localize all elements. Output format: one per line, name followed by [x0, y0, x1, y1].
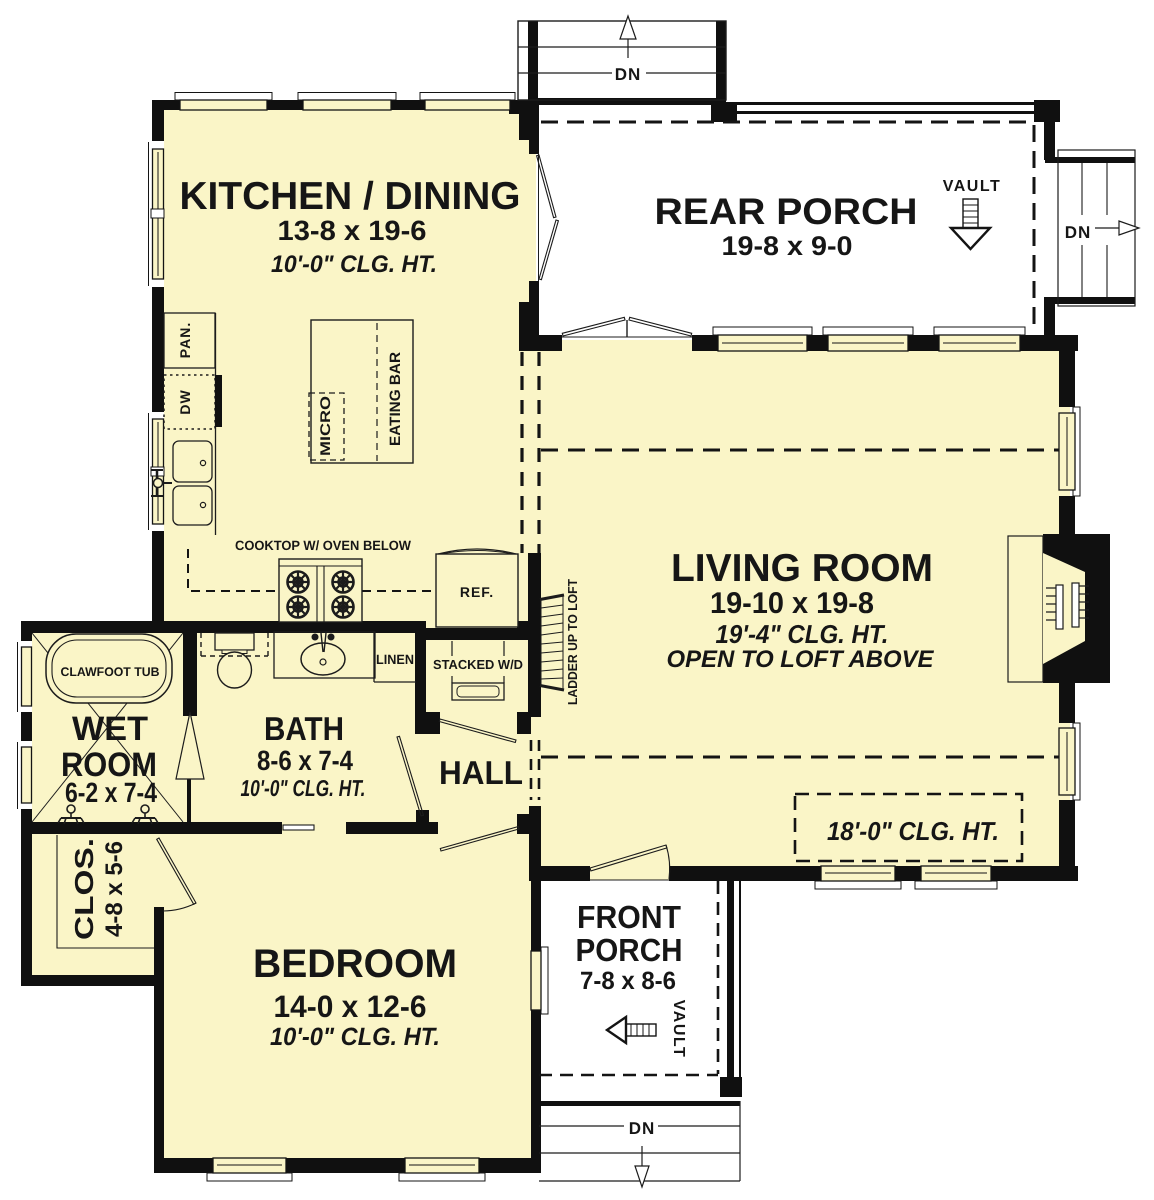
svg-text:18'-0" CLG. HT.: 18'-0" CLG. HT. [827, 816, 999, 846]
svg-text:OPEN TO LOFT ABOVE: OPEN TO LOFT ABOVE [667, 646, 935, 673]
svg-text:VAULT: VAULT [670, 1000, 687, 1058]
svg-text:19-10 x 19-8: 19-10 x 19-8 [710, 587, 874, 620]
svg-text:6-2 x 7-4: 6-2 x 7-4 [65, 777, 157, 808]
svg-text:BEDROOM: BEDROOM [253, 942, 457, 986]
svg-text:LIVING ROOM: LIVING ROOM [671, 547, 933, 590]
svg-text:13-8 x 19-6: 13-8 x 19-6 [278, 215, 427, 246]
svg-text:MICRO: MICRO [317, 396, 333, 456]
svg-text:14-0 x 12-6: 14-0 x 12-6 [274, 989, 427, 1024]
svg-text:HALL: HALL [439, 754, 523, 791]
svg-text:CLOS.: CLOS. [69, 838, 99, 940]
svg-text:BATH: BATH [264, 710, 344, 747]
svg-text:LINEN: LINEN [376, 652, 414, 667]
svg-text:10'-0" CLG. HT.: 10'-0" CLG. HT. [270, 1023, 440, 1051]
svg-text:REAR PORCH: REAR PORCH [655, 191, 918, 232]
svg-text:STACKED W/D: STACKED W/D [433, 657, 523, 672]
svg-text:10'-0" CLG. HT.: 10'-0" CLG. HT. [241, 775, 366, 801]
svg-text:LADDER UP TO LOFT: LADDER UP TO LOFT [565, 579, 580, 705]
svg-text:DN: DN [629, 1119, 656, 1138]
svg-text:CLAWFOOT TUB: CLAWFOOT TUB [61, 665, 160, 679]
svg-text:19-8 x 9-0: 19-8 x 9-0 [722, 231, 853, 261]
svg-text:DN: DN [615, 65, 642, 84]
svg-text:KITCHEN / DINING: KITCHEN / DINING [180, 175, 521, 218]
svg-text:PORCH: PORCH [576, 932, 683, 968]
svg-text:10'-0" CLG. HT.: 10'-0" CLG. HT. [271, 251, 437, 278]
svg-text:VAULT: VAULT [943, 178, 1001, 195]
svg-text:DW: DW [177, 389, 193, 414]
svg-text:FRONT: FRONT [577, 899, 681, 935]
svg-text:WET: WET [72, 710, 148, 748]
svg-text:7-8 x 8-6: 7-8 x 8-6 [580, 967, 676, 995]
svg-text:EATING BAR: EATING BAR [387, 352, 404, 446]
svg-text:4-8 x 5-6: 4-8 x 5-6 [101, 841, 128, 937]
svg-text:DN: DN [1065, 223, 1092, 242]
svg-text:REF.: REF. [460, 584, 494, 600]
svg-text:COOKTOP W/ OVEN BELOW: COOKTOP W/ OVEN BELOW [235, 538, 411, 553]
svg-text:19'-4" CLG. HT.: 19'-4" CLG. HT. [716, 619, 889, 649]
svg-text:PAN.: PAN. [177, 322, 193, 358]
svg-text:8-6 x 7-4: 8-6 x 7-4 [257, 745, 353, 776]
